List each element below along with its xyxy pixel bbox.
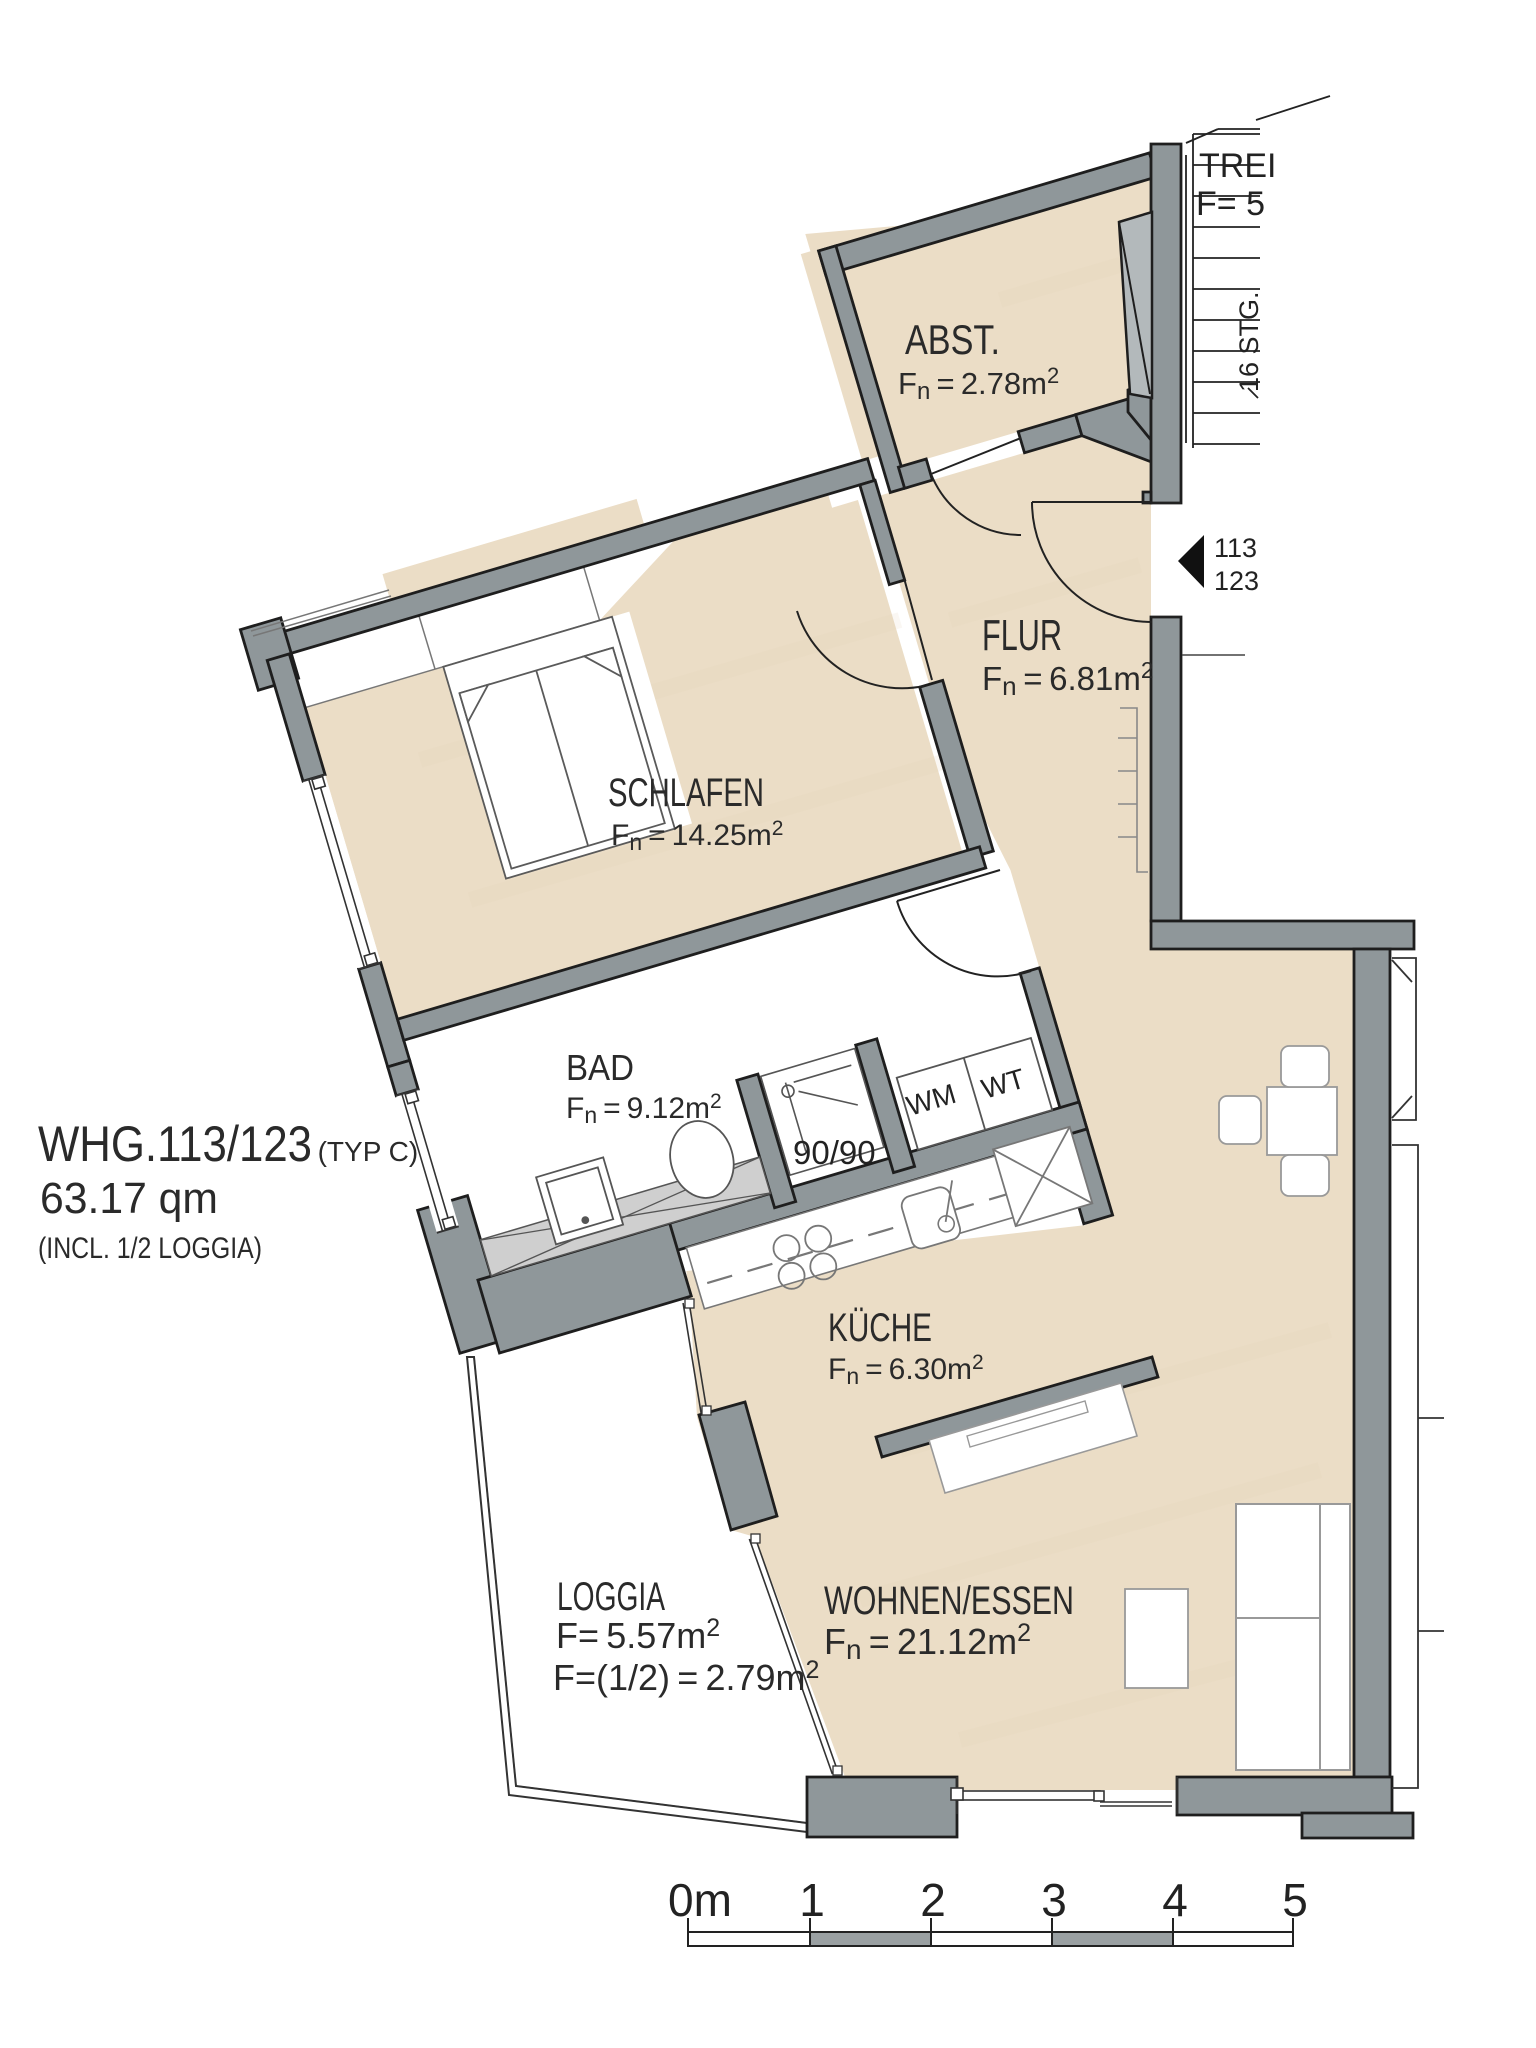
svg-text:F= 5: F= 5 <box>1196 185 1265 223</box>
svg-text:63.17 qm: 63.17 qm <box>40 1174 218 1223</box>
svg-text:16 STG.: 16 STG. <box>1234 291 1264 392</box>
svg-text:FLUR: FLUR <box>982 611 1062 660</box>
svg-text:F=(1/2) = 2.79m2: F=(1/2) = 2.79m2 <box>553 1656 819 1698</box>
svg-text:3: 3 <box>1041 1874 1067 1926</box>
svg-text:(INCL. 1/2 LOGGIA): (INCL. 1/2 LOGGIA) <box>38 1232 262 1265</box>
svg-text:2: 2 <box>920 1874 946 1926</box>
svg-text:WOHNEN/ESSEN: WOHNEN/ESSEN <box>824 1579 1074 1623</box>
svg-text:1: 1 <box>799 1874 825 1926</box>
svg-text:4: 4 <box>1162 1874 1188 1926</box>
svg-text:BAD: BAD <box>566 1047 634 1088</box>
svg-text:90/90: 90/90 <box>793 1134 876 1171</box>
svg-text:0m: 0m <box>668 1874 732 1926</box>
svg-text:TREI: TREI <box>1199 147 1276 185</box>
svg-text:KÜCHE: KÜCHE <box>828 1306 932 1350</box>
svg-text:113: 113 <box>1214 533 1257 563</box>
svg-text:123: 123 <box>1214 566 1259 596</box>
svg-text:LOGGIA: LOGGIA <box>557 1575 665 1619</box>
svg-text:SCHLAFEN: SCHLAFEN <box>608 771 764 815</box>
svg-text:F= 5.57m2: F= 5.57m2 <box>556 1614 720 1656</box>
svg-text:5: 5 <box>1282 1874 1308 1926</box>
svg-text:ABST.: ABST. <box>905 316 1000 363</box>
